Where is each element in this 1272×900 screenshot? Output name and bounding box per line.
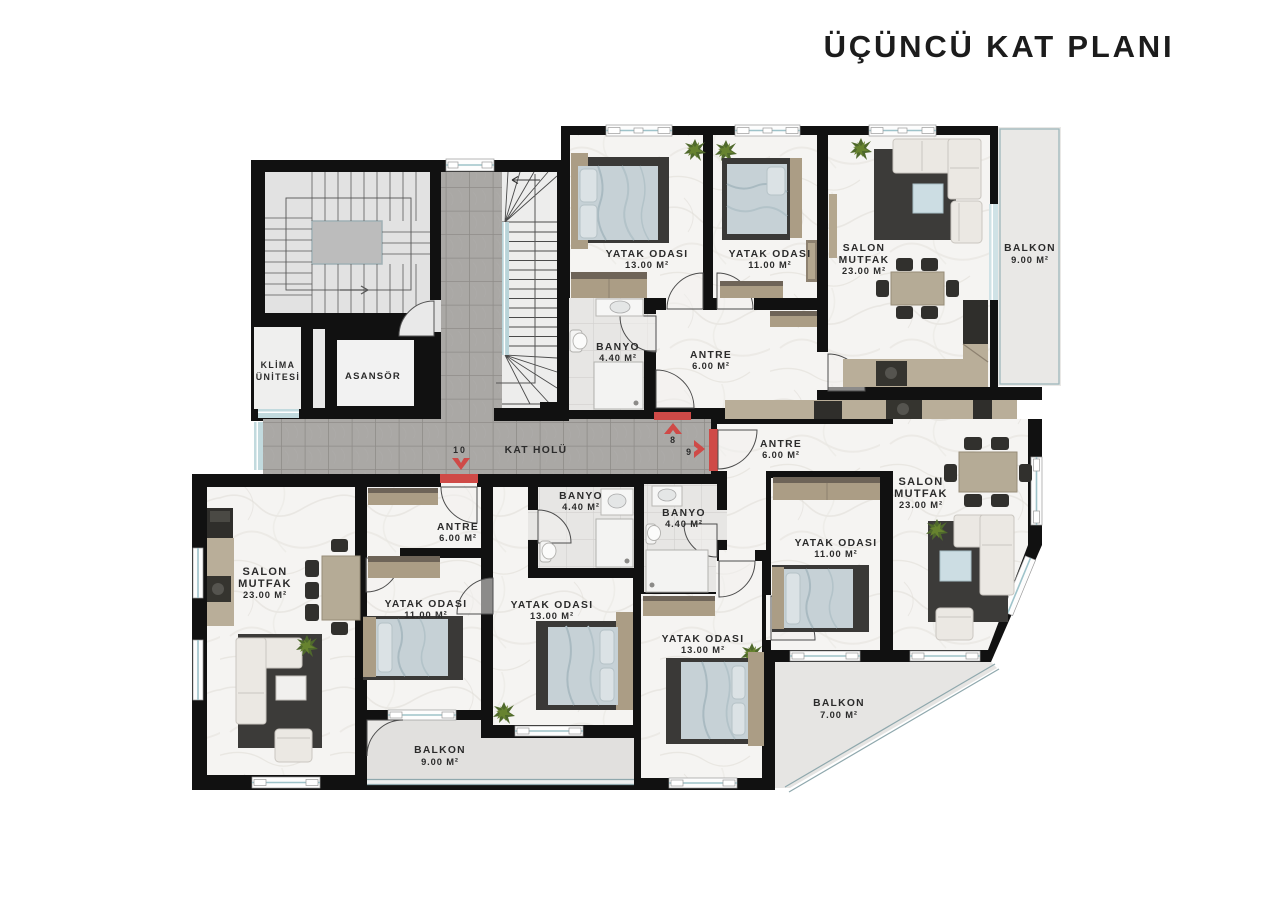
svg-text:YATAK ODASI: YATAK ODASI	[729, 249, 812, 260]
svg-text:13.00 M²: 13.00 M²	[530, 611, 574, 621]
svg-text:ANTRE: ANTRE	[437, 522, 479, 533]
svg-text:ANTRE: ANTRE	[760, 439, 802, 450]
svg-text:23.00 M²: 23.00 M²	[243, 590, 287, 600]
svg-text:SALON: SALON	[243, 566, 288, 578]
svg-text:9.00 M²: 9.00 M²	[421, 757, 459, 767]
svg-text:ÜÇÜNCÜ KAT PLANI: ÜÇÜNCÜ KAT PLANI	[824, 29, 1175, 64]
svg-text:MUTFAK: MUTFAK	[894, 488, 948, 500]
svg-text:YATAK ODASI: YATAK ODASI	[385, 599, 468, 610]
svg-text:BALKON: BALKON	[813, 698, 865, 709]
svg-text:MUTFAK: MUTFAK	[238, 578, 292, 590]
svg-text:SALON: SALON	[899, 476, 944, 488]
svg-text:YATAK ODASI: YATAK ODASI	[606, 249, 689, 260]
svg-text:KAT HOLÜ: KAT HOLÜ	[505, 443, 568, 456]
svg-text:23.00 M²: 23.00 M²	[842, 266, 886, 276]
svg-text:4.40 M²: 4.40 M²	[562, 502, 600, 512]
svg-text:11.00 M²: 11.00 M²	[404, 610, 447, 620]
svg-text:BANYO: BANYO	[662, 508, 706, 519]
svg-text:6.00 M²: 6.00 M²	[692, 361, 730, 371]
svg-text:9: 9	[686, 447, 692, 457]
svg-text:ÜNİTESİ: ÜNİTESİ	[256, 372, 301, 382]
svg-text:6.00 M²: 6.00 M²	[439, 533, 477, 543]
svg-text:MUTFAK: MUTFAK	[839, 255, 890, 266]
svg-text:BANYO: BANYO	[559, 491, 603, 502]
svg-text:YATAK ODASI: YATAK ODASI	[795, 538, 878, 549]
svg-text:YATAK ODASI: YATAK ODASI	[662, 634, 745, 645]
svg-text:10: 10	[453, 445, 467, 455]
svg-text:23.00 M²: 23.00 M²	[899, 500, 943, 510]
svg-text:11.00 M²: 11.00 M²	[814, 549, 857, 559]
svg-text:6.00 M²: 6.00 M²	[762, 450, 800, 460]
svg-text:4.40 M²: 4.40 M²	[665, 519, 703, 529]
svg-text:ASANSÖR: ASANSÖR	[345, 371, 401, 382]
svg-text:11.00 M²: 11.00 M²	[748, 260, 791, 270]
svg-text:YATAK ODASI: YATAK ODASI	[511, 600, 594, 611]
svg-text:SALON: SALON	[843, 243, 886, 254]
svg-text:BALKON: BALKON	[414, 745, 466, 756]
svg-text:4.40 M²: 4.40 M²	[599, 353, 637, 363]
svg-text:KLİMA: KLİMA	[261, 360, 296, 370]
svg-text:8: 8	[670, 435, 676, 445]
svg-text:13.00 M²: 13.00 M²	[681, 645, 725, 655]
svg-text:BALKON: BALKON	[1004, 243, 1056, 254]
svg-text:7.00 M²: 7.00 M²	[820, 710, 858, 720]
svg-text:9.00 M²: 9.00 M²	[1011, 255, 1049, 265]
svg-text:13.00 M²: 13.00 M²	[625, 260, 669, 270]
svg-text:BANYO: BANYO	[596, 342, 640, 353]
svg-text:ANTRE: ANTRE	[690, 350, 732, 361]
